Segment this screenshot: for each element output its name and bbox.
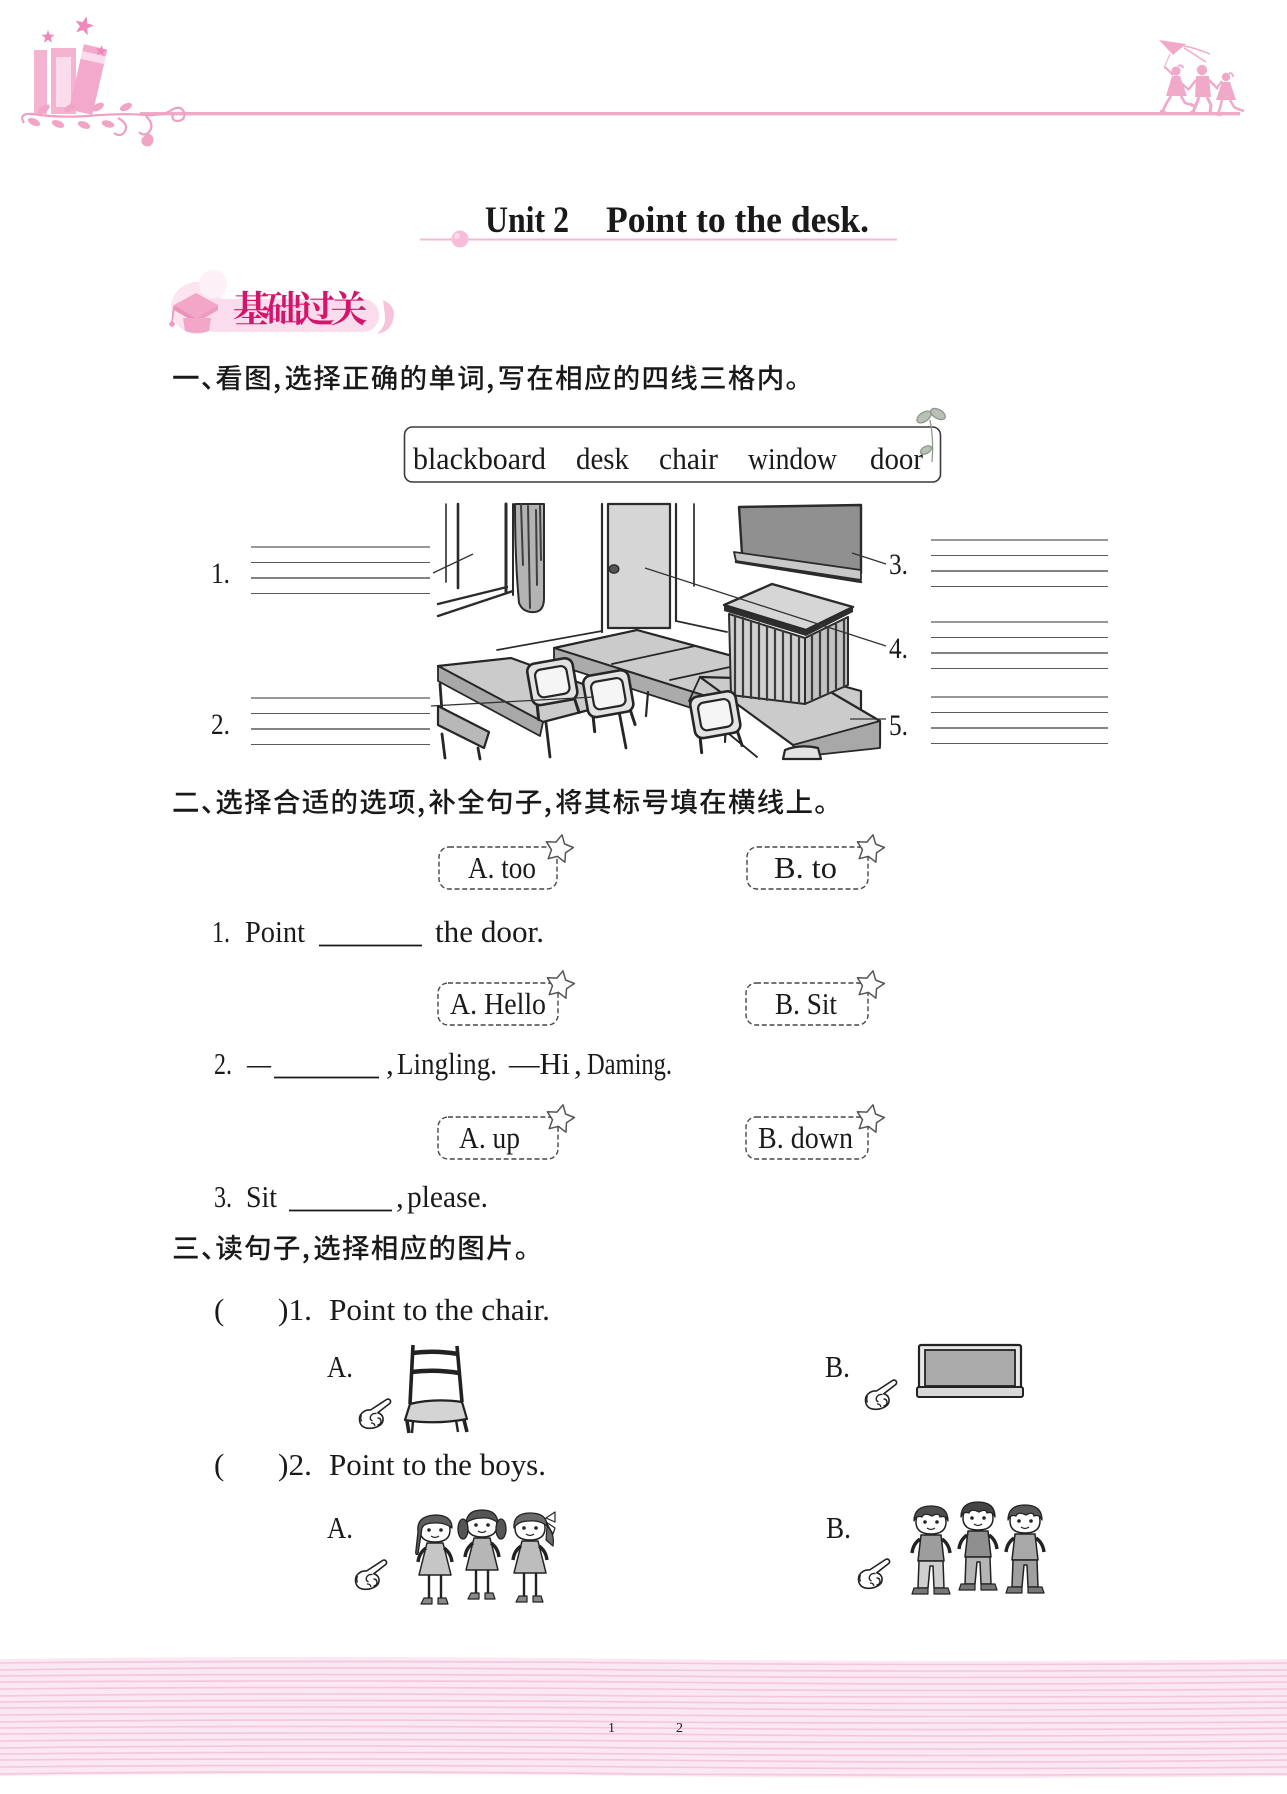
svg-text:2.: 2. [214,1046,232,1081]
svg-text:door: door [870,441,924,476]
svg-text:window: window [748,441,838,476]
svg-text:(: ( [214,1292,224,1327]
svg-text:,: , [574,1046,582,1081]
svg-text:Daming.: Daming. [587,1046,672,1081]
svg-text:chair: chair [659,441,719,476]
svg-text:desk: desk [576,441,629,476]
svg-text:1.: 1. [211,557,230,590]
svg-text:5.: 5. [889,709,908,742]
svg-text:,: , [396,1179,404,1214]
svg-text:B. Sit: B. Sit [775,986,837,1021]
svg-text:B.: B. [826,1510,851,1545]
svg-text:Point to the desk.: Point to the desk. [606,200,869,241]
svg-text:please.: please. [407,1179,488,1214]
svg-text:3.: 3. [889,548,908,581]
svg-text:B.: B. [825,1349,850,1384]
svg-text:2.: 2. [211,708,230,741]
svg-text:4.: 4. [889,632,908,665]
svg-text:1: 1 [608,1721,615,1736]
svg-text:1.: 1. [212,914,230,949]
svg-text:B. down: B. down [758,1120,853,1155]
svg-text:A. Hello: A. Hello [450,986,546,1021]
svg-text:A.: A. [327,1349,353,1384]
svg-text:Lingling.: Lingling. [397,1046,497,1081]
svg-text:)2.: )2. [278,1447,312,1482]
svg-text:A. too: A. too [468,850,536,885]
svg-text:Point: Point [245,914,305,949]
svg-text:B. to: B. to [774,850,837,885]
svg-text:(: ( [214,1447,224,1482]
svg-text:Unit 2: Unit 2 [485,200,569,241]
svg-text:,: , [386,1046,394,1081]
svg-text:—: — [246,1046,272,1081]
svg-text:Point to the boys.: Point to the boys. [329,1447,546,1482]
svg-text:A. up: A. up [459,1120,520,1155]
svg-text:—Hi: —Hi [508,1046,570,1081]
svg-text:blackboard: blackboard [413,441,546,476]
svg-text:the door.: the door. [435,914,544,949]
svg-text:Point to the chair.: Point to the chair. [329,1292,550,1327]
svg-text:A.: A. [327,1510,353,1545]
svg-text:Sit: Sit [246,1179,277,1214]
svg-text:2: 2 [676,1721,683,1736]
svg-text:)1.: )1. [278,1292,312,1327]
svg-text:3.: 3. [214,1179,232,1214]
